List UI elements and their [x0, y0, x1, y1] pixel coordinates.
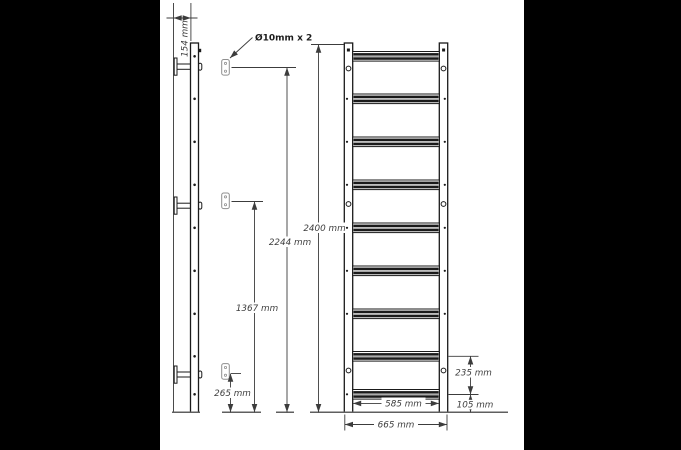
rung-screw-dot	[444, 141, 446, 143]
drawing-canvas: 154 mm Ø10mm x 2 265 mm 1367 mm 2244 mm …	[0, 0, 681, 450]
rail-top-screw-right	[442, 49, 445, 52]
rung-screw-dot	[193, 227, 196, 230]
rung-screw-dot	[346, 227, 348, 229]
rung-screw-dot	[193, 55, 196, 58]
mount-hole	[441, 66, 446, 71]
anchor-plate-bottom	[222, 364, 230, 380]
rung-screw-dot	[444, 270, 446, 272]
rung-screw-dot	[193, 141, 196, 144]
rung-screw-dot	[346, 270, 348, 272]
mount-hole	[346, 202, 351, 207]
rung-screw-dot	[346, 313, 348, 315]
rung-screw-dot	[444, 98, 446, 100]
rung-screw-dot	[193, 313, 196, 316]
rung-screw-dot	[346, 98, 348, 100]
rung-screw-dot	[346, 141, 348, 143]
plate-body	[222, 60, 230, 76]
rung-7	[353, 309, 440, 319]
rung-screw-dot	[346, 393, 348, 395]
anchor-plate-top	[222, 60, 230, 76]
bracket-flange	[174, 197, 177, 214]
rung-screw-dot	[193, 355, 196, 358]
dim-label-105: 105 mm	[457, 401, 494, 411]
rung-screw-dot	[444, 184, 446, 186]
bracket-flange	[174, 366, 177, 383]
rung-8	[353, 352, 440, 362]
dim-label-depth: 154 mm	[181, 20, 191, 57]
plate-body	[222, 193, 230, 209]
mount-hole	[441, 368, 446, 373]
rung-2	[353, 94, 440, 104]
anchor-plate-middle	[222, 193, 230, 209]
rung-screw-dot	[444, 227, 446, 229]
rung-screw-dot	[193, 98, 196, 101]
dim-label-2400: 2400 mm	[303, 224, 345, 234]
rung-screw-dot	[193, 184, 196, 187]
mount-hole	[441, 202, 446, 207]
rung-screw-dot	[193, 393, 196, 396]
rung-1	[353, 52, 440, 62]
hole-callout-label: Ø10mm x 2	[255, 33, 312, 44]
dim-label-1367: 1367 mm	[236, 304, 278, 314]
rung-screw-dot	[444, 313, 446, 315]
mount-hole	[346, 368, 351, 373]
rail-top-screw	[199, 49, 202, 52]
front-rail-right	[439, 43, 447, 412]
rung-screw-dot	[346, 184, 348, 186]
dim-label-665: 665 mm	[378, 421, 415, 431]
dim-label-265: 265 mm	[214, 389, 251, 399]
front-view	[344, 43, 447, 412]
plate-body	[222, 364, 230, 380]
rung-3	[353, 137, 440, 147]
mount-hole	[346, 66, 351, 71]
dim-label-235: 235 mm	[455, 369, 492, 379]
bracket-flange	[174, 58, 177, 75]
rung-6	[353, 266, 440, 276]
dim-label-585: 585 mm	[385, 400, 422, 410]
rung-5	[353, 223, 440, 233]
rail-top-screw-left	[347, 49, 350, 52]
rung-4	[353, 180, 440, 190]
technical-drawing: 154 mm Ø10mm x 2 265 mm 1367 mm 2244 mm …	[0, 0, 681, 450]
dim-label-2244: 2244 mm	[269, 238, 311, 248]
rung-screw-dot	[193, 270, 196, 273]
